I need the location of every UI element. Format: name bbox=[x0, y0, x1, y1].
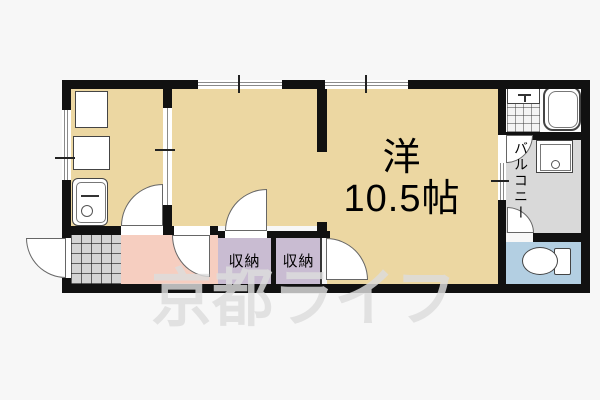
window-top-left bbox=[198, 80, 282, 89]
kitchen-faucet-icon bbox=[81, 195, 99, 197]
wall-balcony-bottom bbox=[533, 233, 581, 242]
floorplan-page: { "watermark": { "text": "京都ライフ" }, "roo… bbox=[0, 0, 600, 400]
sliding-door-kitchen-middle bbox=[163, 108, 172, 205]
outer-wall-right bbox=[581, 80, 590, 293]
window-tick-sliding bbox=[155, 149, 175, 151]
balcony-label: バルコニー bbox=[511, 141, 531, 241]
kitchen-sink bbox=[72, 178, 108, 226]
bath-washbasin bbox=[507, 88, 540, 104]
bath-tile-floor bbox=[507, 104, 540, 132]
window-tick-kitchen-left bbox=[55, 157, 75, 159]
window-tick-main-right bbox=[491, 180, 509, 182]
hallway-door-opening bbox=[174, 226, 210, 235]
wall-partition-lower bbox=[317, 222, 327, 235]
main-room-type: 洋 bbox=[317, 138, 487, 179]
refrigerator bbox=[75, 91, 108, 128]
washer-drain-icon bbox=[551, 160, 560, 169]
bathtub-inner bbox=[548, 91, 578, 128]
main-room-size: 10.5帖 bbox=[317, 179, 487, 220]
main-room-label: 洋 10.5帖 bbox=[317, 138, 487, 220]
entrance-door-swing bbox=[26, 238, 66, 278]
bath-faucet-stem-icon bbox=[524, 96, 526, 102]
genkan-tile-floor bbox=[71, 235, 121, 284]
window-tick-top-right bbox=[365, 75, 367, 93]
storage1-door-opening bbox=[225, 231, 267, 238]
window-kitchen-left bbox=[62, 110, 71, 180]
washing-machine-pan bbox=[536, 140, 573, 173]
kitchen-sink-drain-icon bbox=[81, 205, 93, 217]
toilet-bowl bbox=[522, 247, 558, 275]
window-tick-top-left bbox=[238, 75, 240, 93]
bathtub bbox=[543, 86, 581, 131]
kitchen-door-opening bbox=[121, 226, 163, 235]
kitchen-sink-basin bbox=[76, 182, 106, 223]
watermark-text: 京都ライフ bbox=[151, 248, 457, 339]
kitchen-counter bbox=[73, 136, 110, 170]
balcony-door-opening bbox=[498, 135, 506, 163]
